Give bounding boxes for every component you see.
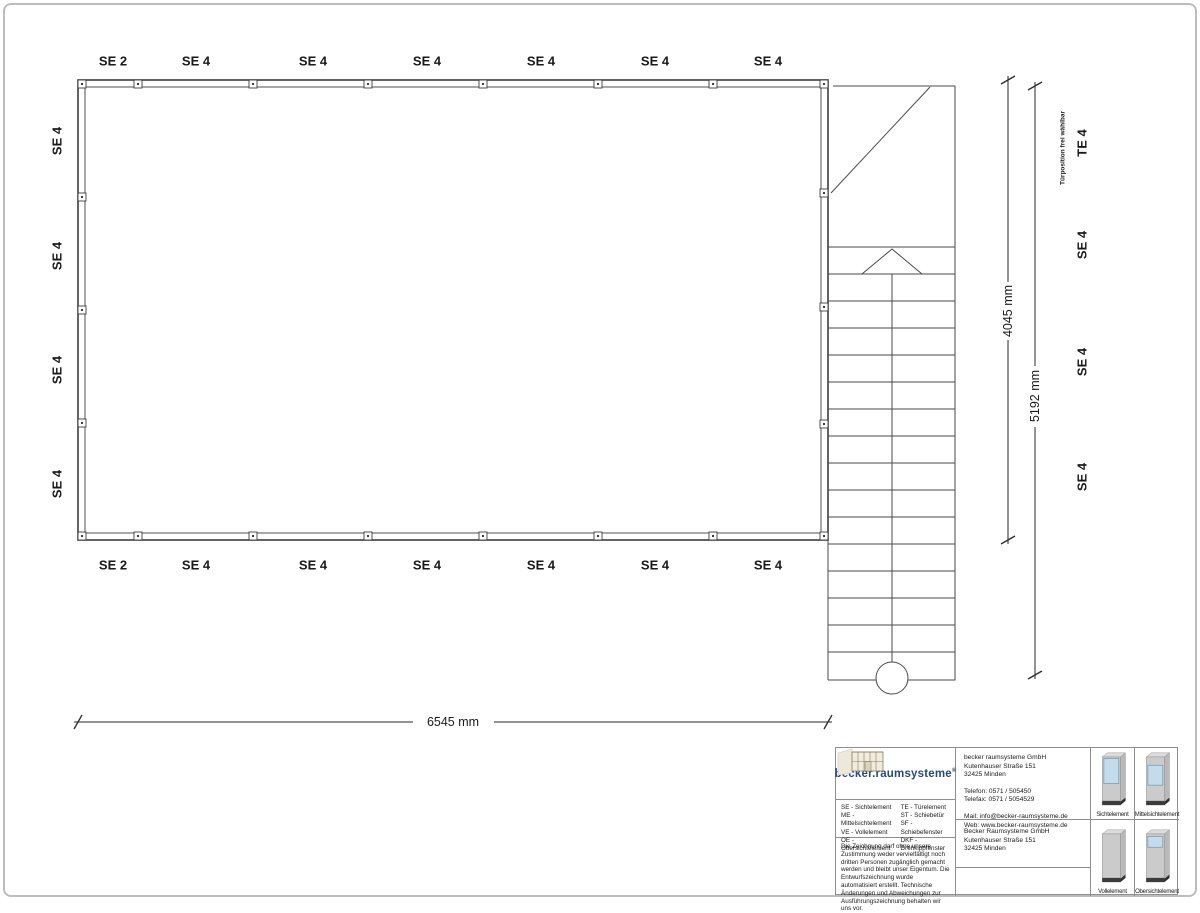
element-label-top-2: SE 4 — [182, 54, 210, 69]
legend-item: ST - Schiebetür — [901, 812, 950, 820]
element-label-right-2: SE 4 — [1075, 231, 1090, 259]
logo-cabin-icon — [836, 748, 886, 775]
title-block: becker.raumsysteme® SE - Sichtelement ME… — [835, 747, 1178, 895]
element-type-sichtelement: Sichtelement — [1091, 748, 1135, 820]
element-label-top-3: SE 4 — [299, 54, 327, 69]
element-label-top-6: SE 4 — [641, 54, 669, 69]
element-type-obersichtelement: Obersichtelement — [1135, 820, 1179, 896]
obersichtelement-icon — [1139, 829, 1175, 887]
element-label-left-2: SE 4 — [50, 242, 65, 270]
outer-wall-line — [78, 80, 828, 540]
vollelement-icon — [1095, 829, 1131, 887]
stair-direction-arrow — [862, 249, 922, 274]
element-label-right-3: SE 4 — [1075, 348, 1090, 376]
element-label-right-1: TE 4 — [1075, 129, 1090, 156]
mittelsichtelement-icon — [1139, 752, 1175, 810]
element-label-top-7: SE 4 — [754, 54, 782, 69]
element-label-left-4: SE 4 — [50, 470, 65, 498]
disclaimer-text: Die Zeichnung darf ohne unsere Zustimmun… — [841, 843, 950, 913]
legend-item: SF - Schiebefenster — [901, 820, 950, 836]
element-type-vollelement: Vollelement — [1091, 820, 1135, 896]
company-name: becker raumsysteme GmbH — [964, 754, 1082, 763]
phone: Telefon: 0571 / 505450 — [964, 788, 1082, 797]
element-type-label: Sichtelement — [1096, 812, 1128, 818]
dimension-total-depth: 5192 mm — [1028, 367, 1042, 425]
contact-cell: becker raumsysteme GmbH Kutenhauser Stra… — [956, 748, 1091, 820]
element-label-top-5: SE 4 — [527, 54, 555, 69]
element-label-bottom-4: SE 4 — [413, 558, 441, 573]
element-label-bottom-1: SE 2 — [99, 558, 127, 573]
element-label-right-4: SE 4 — [1075, 463, 1090, 491]
element-label-left-1: SE 4 — [50, 127, 65, 155]
element-type-label: Mittelsichtelement — [1135, 812, 1179, 818]
fax: Telefax: 0571 / 5054529 — [964, 796, 1082, 805]
dimension-width: 6545 mm — [424, 715, 482, 729]
empty-cell — [956, 868, 1091, 896]
element-label-left-3: SE 4 — [50, 356, 65, 384]
street: Kutenhauser Straße 151 — [964, 763, 1082, 772]
stair-start-circle — [876, 662, 908, 694]
dimension-depth: 4045 mm — [1001, 282, 1015, 340]
element-label-top-1: SE 2 — [99, 54, 127, 69]
city: 32425 Minden — [964, 771, 1082, 780]
legend-item: VE - Vollelement — [841, 829, 893, 837]
element-label-bottom-6: SE 4 — [641, 558, 669, 573]
element-label-bottom-2: SE 4 — [182, 558, 210, 573]
wall-mullions — [78, 80, 828, 540]
floor-plan-drawing — [0, 0, 1200, 740]
stair-enclosure — [828, 86, 955, 694]
address-cell: Becker Raumsysteme GmbH Kutenhauser Stra… — [956, 820, 1091, 868]
logo-cell: becker.raumsysteme® — [836, 748, 956, 800]
door-position-note: Türposition frei wählbar — [1060, 111, 1067, 185]
legend-item: SE - Sichtelement — [841, 804, 893, 812]
element-label-bottom-7: SE 4 — [754, 558, 782, 573]
dimension-lines — [74, 76, 1042, 729]
element-type-label: Obersichtelement — [1135, 889, 1179, 895]
disclaimer-cell: Die Zeichnung darf ohne unsere Zustimmun… — [836, 838, 956, 896]
element-label-bottom-3: SE 4 — [299, 558, 327, 573]
drawing-sheet: { "plan": { "top_labels": ["SE 2","SE 4"… — [0, 0, 1200, 900]
inner-wall-line — [85, 87, 821, 533]
legend-item: ME - Mittelsichtelement — [841, 812, 893, 828]
legend-cell: SE - Sichtelement ME - Mittelsichtelemen… — [836, 800, 956, 838]
sichtelement-icon — [1095, 752, 1131, 810]
door-swing-line — [831, 87, 930, 193]
element-label-bottom-5: SE 4 — [527, 558, 555, 573]
company-name: Becker Raumsysteme GmbH — [964, 828, 1082, 837]
legend-item: TE - Türelement — [901, 804, 950, 812]
element-type-label: Vollelement — [1098, 889, 1127, 895]
element-label-top-4: SE 4 — [413, 54, 441, 69]
city: 32425 Minden — [964, 845, 1082, 854]
street: Kutenhauser Straße 151 — [964, 837, 1082, 846]
element-type-mittelsichtelement: Mittelsichtelement — [1135, 748, 1179, 820]
